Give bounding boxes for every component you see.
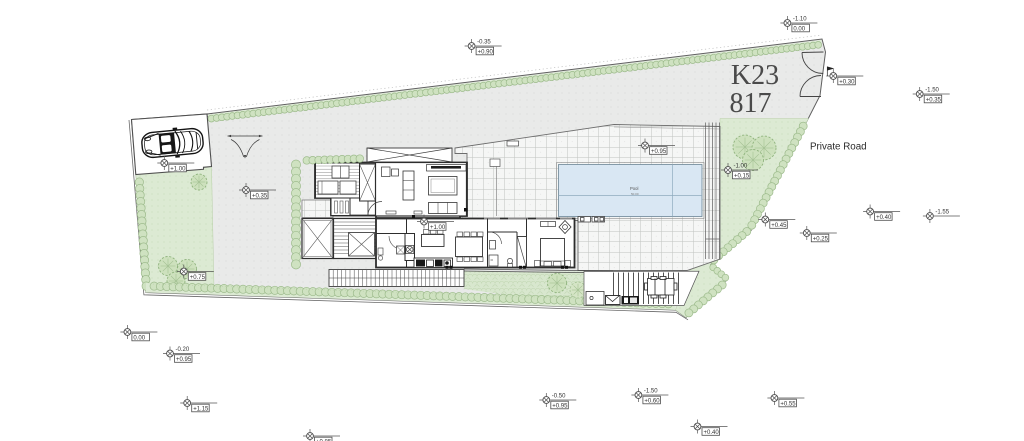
svg-text:+0.75: +0.75 [190, 275, 206, 281]
svg-text:-1.50: -1.50 [925, 88, 939, 94]
svg-text:+0.45: +0.45 [771, 223, 787, 229]
svg-text:+0.90: +0.90 [478, 49, 494, 55]
svg-text:+0.35: +0.35 [926, 97, 942, 103]
svg-text:0.00: 0.00 [133, 335, 145, 341]
svg-text:+0.40: +0.40 [876, 215, 892, 221]
svg-text:+0.15: +0.15 [734, 173, 750, 179]
svg-text:+0.95: +0.95 [552, 403, 568, 409]
svg-text:+1.00: +1.00 [430, 225, 446, 231]
svg-text:+0.40: +0.40 [704, 430, 720, 436]
svg-text:-0.50: -0.50 [552, 394, 566, 400]
svg-text:-1.00: -1.00 [734, 164, 748, 170]
svg-text:K23: K23 [731, 60, 779, 91]
svg-text:-1.50: -1.50 [644, 389, 658, 395]
svg-text:+0.55: +0.55 [780, 401, 796, 407]
svg-text:-1.55: -1.55 [935, 210, 949, 216]
svg-text:+0.95: +0.95 [176, 357, 192, 363]
svg-text:-0.20: -0.20 [176, 347, 190, 353]
svg-text:Pool: Pool [630, 186, 638, 191]
svg-text:Private Road: Private Road [810, 142, 867, 153]
svg-text:+1.15: +1.15 [193, 406, 209, 412]
svg-text:+1.00: +1.00 [170, 166, 186, 172]
svg-text:+0.25: +0.25 [813, 236, 829, 242]
svg-text:817: 817 [730, 88, 772, 119]
svg-text:+0.35: +0.35 [252, 193, 268, 199]
svg-text:-1.10: -1.10 [793, 17, 807, 23]
svg-text:50.00: 50.00 [631, 192, 639, 196]
svg-text:-0.35: -0.35 [477, 40, 491, 46]
svg-text:+0.60: +0.60 [644, 398, 660, 404]
svg-text:0.00: 0.00 [793, 26, 805, 32]
svg-text:+0.30: +0.30 [839, 79, 855, 85]
svg-text:+0.95: +0.95 [651, 149, 667, 155]
